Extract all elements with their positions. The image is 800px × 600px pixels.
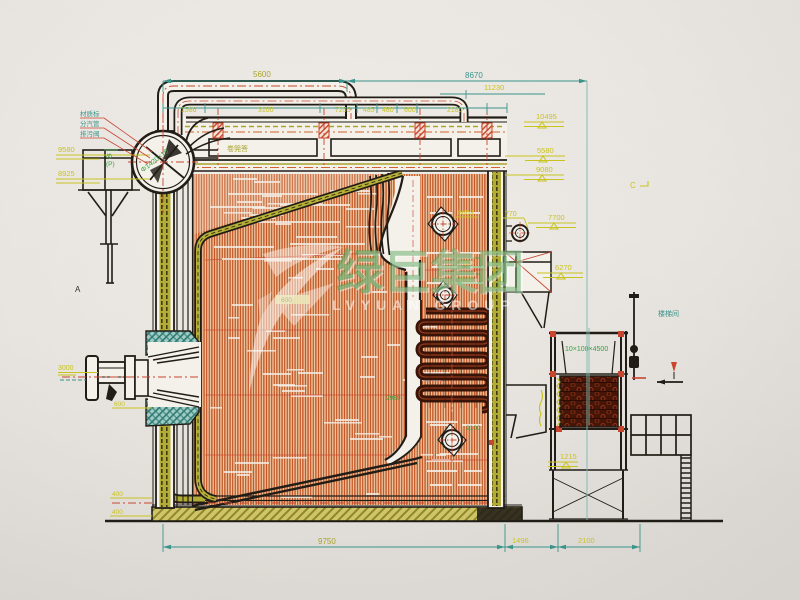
svg-text:5600: 5600 [253, 70, 271, 79]
svg-text:分汽管: 分汽管 [80, 119, 100, 128]
svg-text:7255: 7255 [335, 107, 351, 114]
svg-text:LVYUAN GROUP: LVYUAN GROUP [332, 297, 516, 313]
svg-text:2180: 2180 [447, 107, 463, 114]
svg-text:3100: 3100 [258, 107, 274, 114]
svg-text:(P): (P) [106, 161, 115, 168]
svg-text:770: 770 [505, 211, 517, 218]
svg-text:600: 600 [114, 401, 125, 408]
svg-text:5580: 5580 [537, 146, 554, 155]
svg-text:1496: 1496 [512, 536, 529, 545]
svg-text:巨集团: 巨集团 [383, 246, 524, 299]
svg-text:C: C [630, 181, 636, 190]
svg-text:7700: 7700 [548, 213, 565, 222]
svg-text:卷筦箁: 卷筦箁 [227, 144, 248, 153]
svg-text:9750: 9750 [318, 537, 336, 546]
svg-text:600: 600 [404, 107, 416, 114]
svg-text:A: A [75, 285, 81, 294]
svg-text:9080: 9080 [536, 165, 553, 174]
svg-text:400: 400 [112, 491, 123, 498]
svg-text:8603: 8603 [458, 210, 474, 217]
svg-text:1215: 1215 [560, 452, 577, 461]
svg-text:1586: 1586 [181, 107, 197, 114]
svg-text:め: め [106, 152, 113, 160]
svg-text:400: 400 [112, 509, 123, 516]
svg-text:8670: 8670 [465, 71, 483, 80]
svg-text:材质标: 材质标 [80, 109, 100, 118]
svg-text:2100: 2100 [466, 425, 481, 432]
svg-text:排污阀: 排污阀 [80, 129, 100, 138]
svg-text:6270: 6270 [555, 263, 572, 272]
svg-text:2100: 2100 [578, 536, 595, 545]
svg-text:楼梯间: 楼梯间 [658, 309, 679, 318]
svg-text:485: 485 [363, 107, 375, 114]
svg-text:11230: 11230 [484, 83, 504, 92]
svg-text:9580: 9580 [58, 145, 75, 154]
svg-text:10495: 10495 [536, 112, 557, 121]
svg-text:8925: 8925 [58, 169, 75, 178]
svg-text:480: 480 [382, 107, 394, 114]
svg-text:2960: 2960 [386, 395, 401, 402]
svg-text:3000: 3000 [58, 365, 74, 372]
svg-text:绿: 绿 [336, 246, 384, 299]
